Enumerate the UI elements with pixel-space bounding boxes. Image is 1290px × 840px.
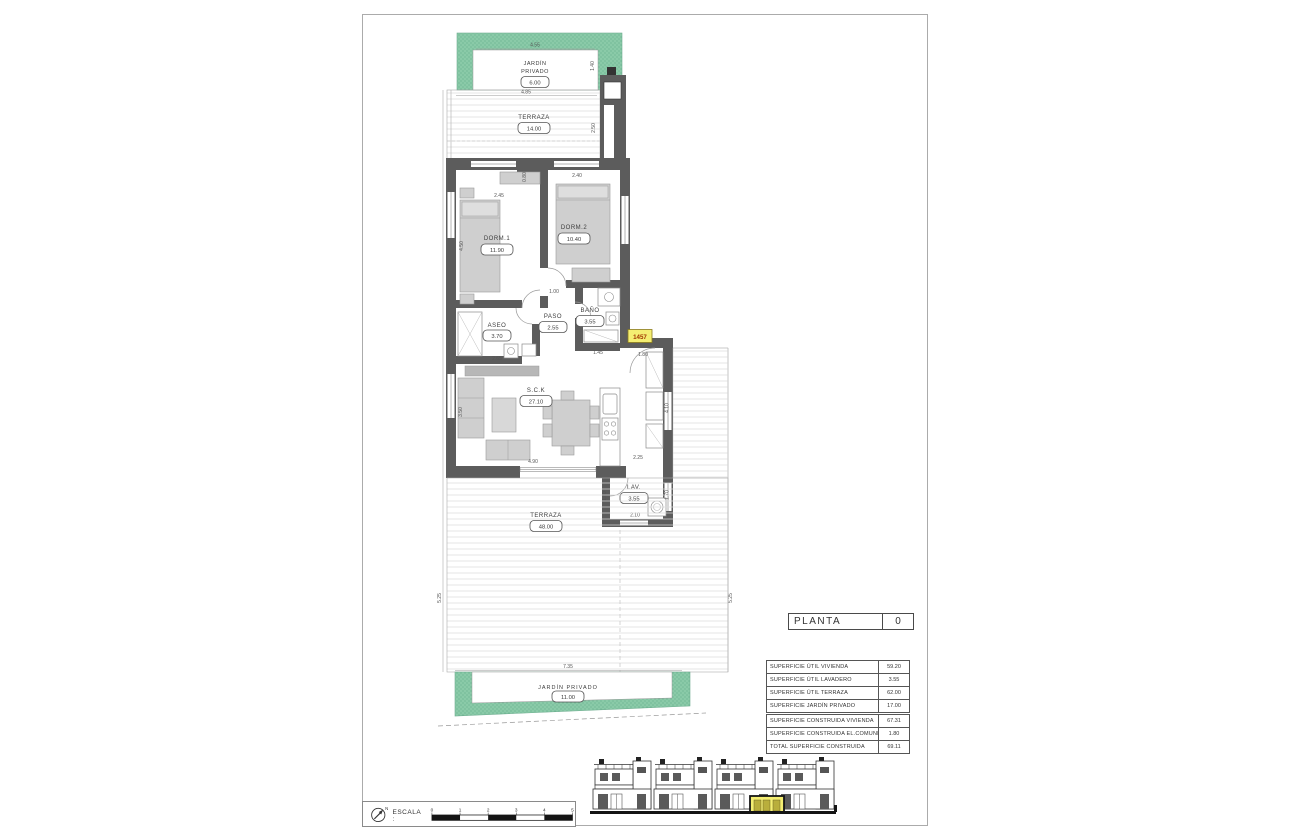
row-value: 67.31 — [878, 715, 909, 727]
dim-dorm2-window: 2.40 — [572, 173, 582, 179]
dim-garden-top-width: 4.55 — [530, 43, 540, 49]
dim-dorm1-depth: 4.50 — [459, 241, 465, 251]
table-row: SUPERFICIE JARDÍN PRIVADO 17.00 — [767, 700, 909, 712]
scale-tick: 1 — [458, 807, 461, 812]
row-label: SUPERFICIE ÚTIL VIVIENDA — [767, 661, 878, 673]
scale-tick: 2 — [486, 807, 489, 812]
table-row: TOTAL SUPERFICIE CONSTRUIDA 69.11 — [767, 741, 909, 753]
room-area-jardin-top: 6.00 — [529, 81, 540, 87]
row-value: 62.00 — [878, 687, 909, 699]
row-label: TOTAL SUPERFICIE CONSTRUIDA — [767, 741, 878, 753]
room-label-bano: BAÑO — [580, 307, 599, 314]
unit-highlight — [750, 796, 784, 813]
dim-kitchen-pass: 2.25 — [633, 455, 643, 461]
scale-box: N ESCALA : 0 1 2 3 4 5 — [362, 801, 576, 827]
row-label: SUPERFICIE ÚTIL LAVADERO — [767, 674, 878, 686]
table-row: SUPERFICIE ÚTIL VIVIENDA 59.20 — [767, 661, 909, 674]
dim-terrace-left: 5.25 — [437, 593, 443, 603]
dim-bano-width: 1.45 — [593, 350, 603, 356]
garden-bottom: JARDÍN PRIVADO 11.00 — [438, 672, 706, 726]
room-area-terraza-top: 14.00 — [527, 127, 542, 133]
dim-kitchen-depth: 4.10 — [665, 403, 671, 413]
room-label-jardin-bottom: JARDÍN PRIVADO — [538, 684, 598, 691]
room-label-jardin-top-1: JARDÍN — [524, 60, 547, 67]
dim-living-depth: 3.50 — [458, 407, 464, 417]
title-block-label: PLANTA — [789, 614, 882, 629]
building-elevation — [590, 755, 845, 827]
table-row: SUPERFICIE ÚTIL LAVADERO 3.55 — [767, 674, 909, 687]
garden-top: 4.55 JARDÍN PRIVADO 6.00 1.40 — [457, 33, 622, 90]
room-label-jardin-top-2: PRIVADO — [521, 69, 549, 75]
dim-terrace-right: 5.25 — [728, 593, 734, 603]
ground-line — [590, 811, 836, 814]
stair-structure — [600, 67, 626, 165]
room-label-dorm1: DORM.1 — [484, 236, 510, 242]
terrace-top: 4.85 TERRAZA 14.00 2.50 — [447, 90, 600, 164]
dim-garden-top-right: 1.40 — [590, 61, 596, 71]
built-areas-table: SUPERFICIE CONSTRUIDA VIVIENDA 67.31 SUP… — [766, 714, 910, 754]
room-area-paso: 2.55 — [547, 326, 558, 332]
table-row: SUPERFICIE ÚTIL TERRAZA 62.00 — [767, 687, 909, 700]
title-block-number: 0 — [882, 614, 913, 629]
scale-tick: 3 — [515, 807, 518, 812]
title-block: PLANTA 0 — [788, 613, 914, 630]
row-value: 3.55 — [878, 674, 909, 686]
row-label: SUPERFICIE CONSTRUIDA EL.COMUNES — [767, 728, 878, 740]
dim-terrace-top-width: 4.85 — [521, 90, 531, 96]
room-label-terraza-top: TERRAZA — [518, 115, 550, 121]
room-area-sck: 27.10 — [529, 400, 544, 406]
scale-label: ESCALA : — [393, 809, 425, 823]
dim-dorm1-window: 2.45 — [494, 193, 504, 199]
plan-sheet: 4.55 JARDÍN PRIVADO 6.00 1.40 4.85 TERRA… — [362, 14, 928, 826]
table-row: SUPERFICIE CONSTRUIDA VIVIENDA 67.31 — [767, 715, 909, 728]
row-value: 59.20 — [878, 661, 909, 673]
scale-tick: 0 — [430, 807, 433, 812]
unit-number-badge: 1457 — [628, 330, 652, 343]
useful-areas-table: SUPERFICIE ÚTIL VIVIENDA 59.20 SUPERFICI… — [766, 660, 910, 713]
dim-recess: 0.80 — [522, 172, 528, 182]
row-value: 17.00 — [878, 700, 909, 712]
row-label: SUPERFICIE ÚTIL TERRAZA — [767, 687, 878, 699]
table-row: SUPERFICIE CONSTRUIDA EL.COMUNES 1.80 — [767, 728, 909, 741]
dim-hall: 1.00 — [549, 289, 559, 295]
room-area-dorm2: 10.40 — [567, 237, 582, 243]
dim-living-width: 4.90 — [528, 459, 538, 465]
room-area-jardin-bottom: 11.00 — [561, 695, 575, 701]
scale-bar: 0 1 2 3 4 5 — [429, 806, 575, 823]
dim-aseo-width: 2.65 — [492, 356, 502, 362]
drawing-canvas: 4.55 JARDÍN PRIVADO 6.00 1.40 4.85 TERRA… — [0, 0, 1290, 840]
north-arrow-icon: N — [369, 804, 389, 824]
room-area-terraza-bottom: 48.00 — [539, 525, 554, 531]
row-value: 1.80 — [878, 728, 909, 740]
dim-entrance-width: 1.80 — [638, 352, 648, 358]
room-label-sck: S.C.K — [527, 388, 545, 394]
scale-tick: 5 — [571, 807, 574, 812]
room-label-paso: PASO — [544, 314, 562, 320]
room-area-bano: 3.55 — [584, 320, 595, 326]
row-label: SUPERFICIE JARDÍN PRIVADO — [767, 700, 878, 712]
unit-number-text: 1457 — [633, 334, 647, 341]
room-area-aseo: 3.70 — [491, 334, 502, 340]
dim-terrace-top-depth: 2.50 — [591, 123, 597, 133]
room-label-aseo: ASEO — [488, 323, 507, 329]
room-label-dorm2: DORM.2 — [561, 225, 587, 231]
north-label: N — [385, 806, 388, 811]
scale-tick: 4 — [543, 807, 546, 812]
room-label-terraza-bottom: TERRAZA — [530, 513, 562, 519]
terrace-bottom: TERRAZA 48.00 — [447, 348, 728, 672]
floor-plan: 4.55 JARDÍN PRIVADO 6.00 1.40 4.85 TERRA… — [433, 22, 739, 728]
row-label: SUPERFICIE CONSTRUIDA VIVIENDA — [767, 715, 878, 727]
row-value: 69.11 — [878, 741, 909, 753]
room-area-dorm1: 11.90 — [490, 248, 504, 254]
